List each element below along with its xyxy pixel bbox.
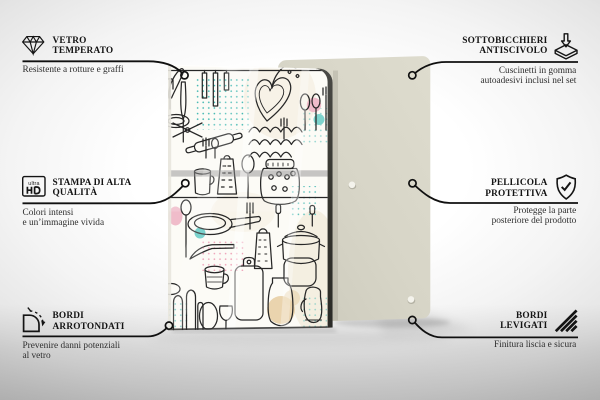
svg-text:ultra: ultra bbox=[28, 181, 40, 187]
